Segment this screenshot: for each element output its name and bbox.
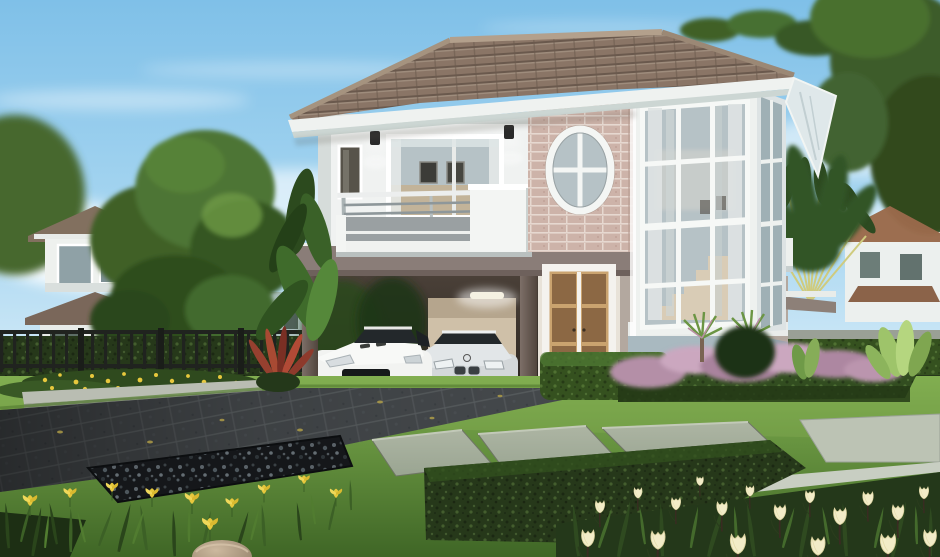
picture-frame (420, 162, 437, 183)
roundel-badge (464, 355, 471, 362)
corner-window-tower (630, 90, 786, 336)
narrow-window (339, 146, 361, 198)
balcony (336, 184, 534, 257)
bg-left-window (58, 245, 92, 285)
rendered-photo (0, 0, 940, 557)
kidney-grille (454, 366, 466, 375)
balcony-end-panel (470, 188, 532, 253)
oval-window (546, 126, 614, 214)
ceiling-light (470, 292, 504, 299)
house-rendering (0, 0, 940, 557)
